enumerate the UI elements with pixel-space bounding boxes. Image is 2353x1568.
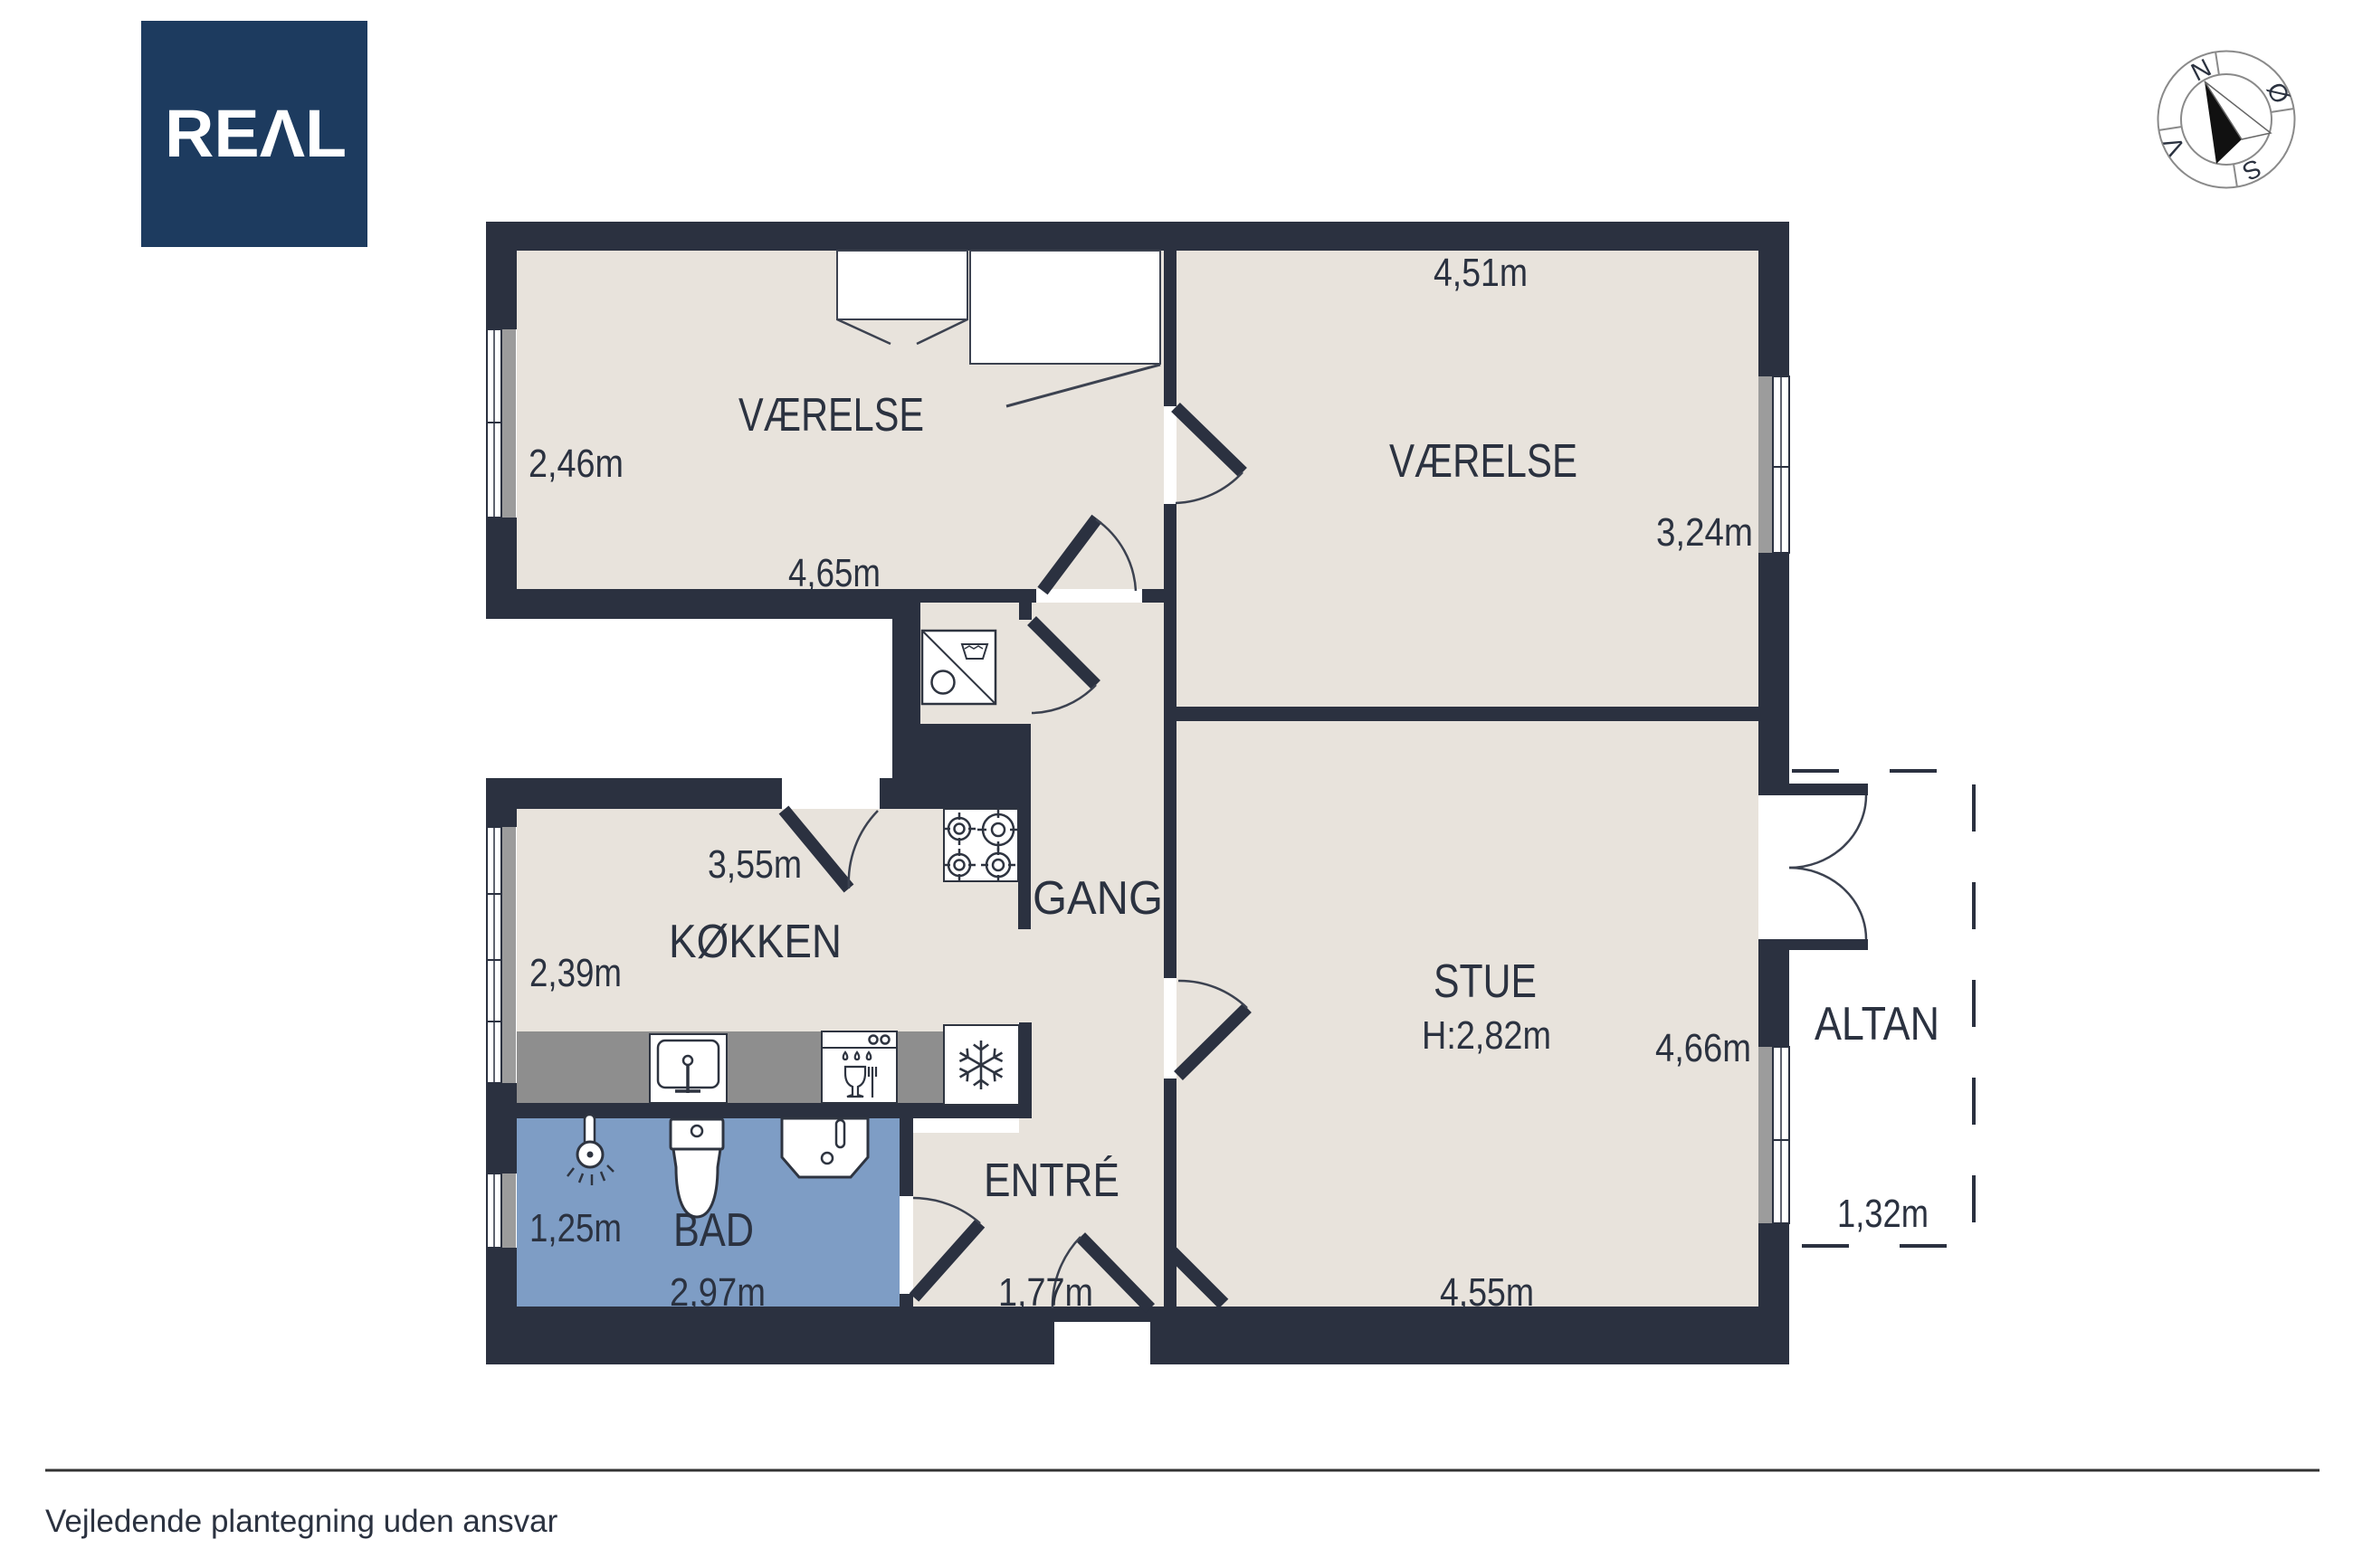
svg-text:GANG: GANG: [1033, 872, 1163, 925]
svg-text:KØKKEN: KØKKEN: [669, 916, 842, 968]
svg-text:1,32m: 1,32m: [1837, 1192, 1929, 1236]
svg-text:VÆRELSE: VÆRELSE: [1389, 435, 1577, 488]
svg-text:2,97m: 2,97m: [670, 1270, 766, 1315]
svg-text:1,25m: 1,25m: [529, 1206, 622, 1250]
svg-text:4,55m: 4,55m: [1440, 1270, 1534, 1315]
svg-text:H:2,82m: H:2,82m: [1422, 1013, 1551, 1058]
svg-text:3,24m: 3,24m: [1656, 510, 1753, 555]
svg-text:3,55m: 3,55m: [708, 842, 802, 887]
svg-text:ENTRÉ: ENTRÉ: [984, 1155, 1119, 1207]
svg-text:ALTAN: ALTAN: [1815, 998, 1939, 1050]
svg-text:2,46m: 2,46m: [529, 442, 624, 486]
svg-text:2,39m: 2,39m: [529, 951, 622, 995]
svg-text:4,51m: 4,51m: [1434, 251, 1528, 295]
svg-text:4,66m: 4,66m: [1655, 1026, 1751, 1070]
svg-text:STUE: STUE: [1434, 955, 1537, 1008]
svg-text:BAD: BAD: [673, 1204, 754, 1257]
svg-text:REΛL: REΛL: [165, 96, 347, 171]
svg-text:Vejledende plantegning uden an: Vejledende plantegning uden ansvar: [45, 1504, 558, 1539]
svg-text:4,65m: 4,65m: [788, 551, 881, 595]
svg-text:VÆRELSE: VÆRELSE: [738, 389, 924, 442]
svg-text:1,77m: 1,77m: [998, 1270, 1093, 1315]
